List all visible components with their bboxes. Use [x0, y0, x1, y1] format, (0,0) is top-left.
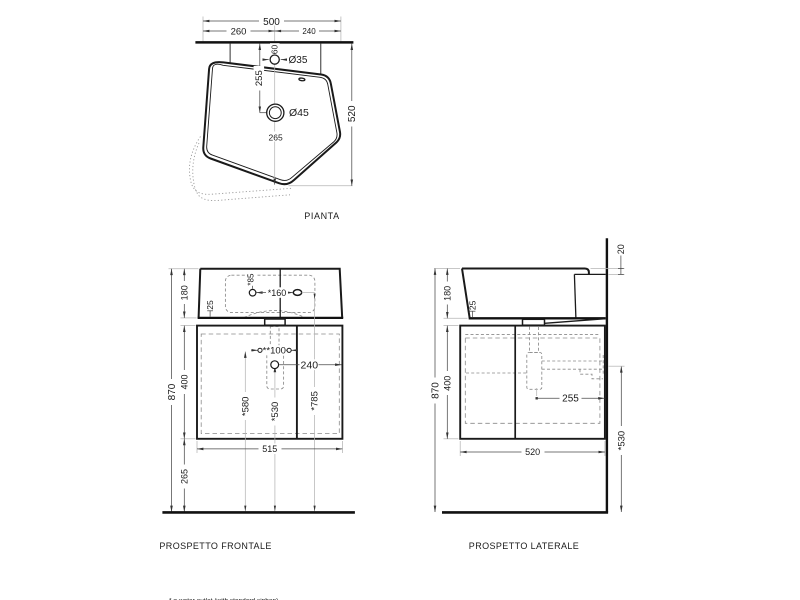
svg-text:520: 520	[525, 447, 540, 457]
svg-text:265: 265	[269, 132, 283, 142]
svg-text:180: 180	[179, 285, 189, 300]
svg-text:25: 25	[205, 300, 215, 310]
svg-text:520: 520	[347, 105, 358, 122]
svg-text:60: 60	[270, 45, 280, 55]
svg-text:Ø35: Ø35	[289, 55, 308, 66]
svg-text:400: 400	[179, 374, 189, 389]
svg-text:870: 870	[167, 383, 178, 400]
svg-text:**100: **100	[263, 346, 286, 357]
svg-text:240: 240	[301, 359, 319, 371]
svg-text:PIANTA: PIANTA	[304, 211, 339, 221]
svg-text:870: 870	[430, 382, 441, 399]
svg-text:*530: *530	[616, 431, 627, 451]
svg-text:260: 260	[231, 27, 247, 38]
svg-text:265: 265	[179, 469, 189, 484]
svg-text:515: 515	[262, 444, 277, 454]
svg-text:*160: *160	[268, 288, 287, 298]
svg-text:400: 400	[442, 376, 452, 391]
svg-text:Ø45: Ø45	[289, 107, 309, 119]
svg-text:240: 240	[302, 27, 316, 36]
svg-text:255: 255	[254, 70, 265, 86]
svg-text:255: 255	[562, 394, 579, 405]
svg-text:PROSPETTO FRONTALE: PROSPETTO FRONTALE	[159, 541, 271, 551]
svg-text:*85: *85	[247, 273, 256, 286]
svg-text:*580: *580	[240, 397, 251, 417]
svg-text:180: 180	[442, 286, 452, 301]
svg-text:*785: *785	[310, 391, 321, 411]
svg-text:500: 500	[263, 17, 280, 28]
svg-text:20: 20	[616, 244, 626, 254]
svg-text:PROSPETTO LATERALE: PROSPETTO LATERALE	[469, 541, 579, 551]
svg-text:*530: *530	[270, 402, 281, 422]
svg-text:25: 25	[468, 300, 478, 310]
